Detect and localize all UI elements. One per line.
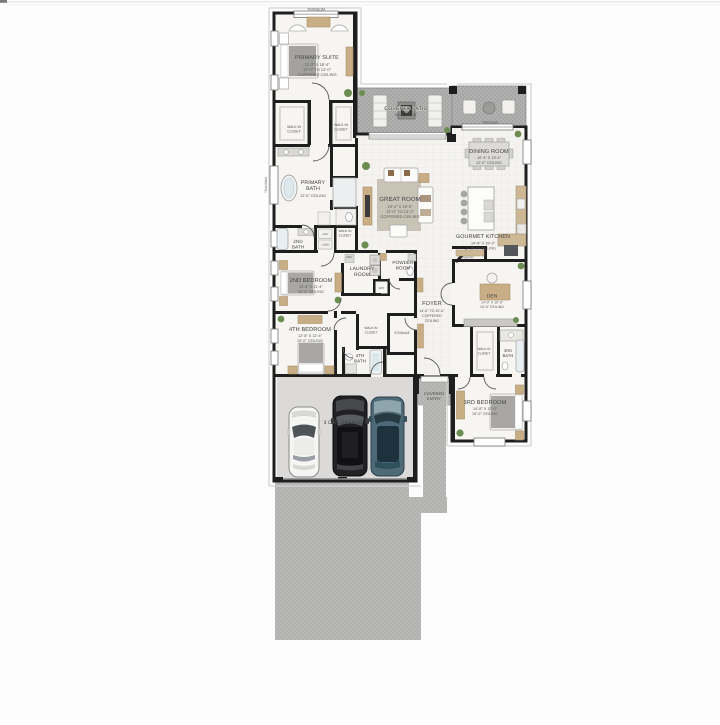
svg-text:12'-0" CEILING: 12'-0" CEILING	[300, 194, 326, 198]
svg-text:WALK IN: WALK IN	[478, 347, 492, 351]
svg-text:2ND: 2ND	[293, 239, 303, 244]
svg-text:COFFERED CEILING: COFFERED CEILING	[380, 214, 419, 219]
svg-text:PRIMARY SUITE: PRIMARY SUITE	[295, 55, 339, 61]
svg-text:ROOM: ROOM	[396, 266, 411, 271]
svg-text:10'-0" CEILING: 10'-0" CEILING	[297, 339, 323, 343]
svg-text:11'-4" X 11'-4": 11'-4" X 11'-4"	[299, 285, 323, 289]
svg-text:ROOM: ROOM	[354, 272, 370, 278]
svg-text:3 CAR GARAGE: 3 CAR GARAGE	[324, 420, 363, 426]
svg-text:GOURMET KITCHEN: GOURMET KITCHEN	[456, 234, 510, 240]
svg-text:GREAT ROOM: GREAT ROOM	[379, 196, 420, 203]
svg-text:14'-0" TO 15'-0": 14'-0" TO 15'-0"	[419, 309, 445, 313]
svg-text:CLOSET: CLOSET	[334, 128, 348, 132]
svg-text:10'-0" CEILING: 10'-0" CEILING	[480, 305, 504, 309]
svg-text:14'-8" X 12'-0": 14'-8" X 12'-0"	[473, 407, 498, 411]
svg-text:4TH BEDROOM: 4TH BEDROOM	[289, 327, 331, 333]
svg-text:PANTRY: PANTRY	[462, 256, 474, 260]
svg-text:16'-4" X 13'-4": 16'-4" X 13'-4"	[477, 156, 502, 160]
svg-text:TRANSOM: TRANSOM	[264, 177, 268, 193]
svg-text:14'-0" X 10'-0": 14'-0" X 10'-0"	[481, 301, 504, 305]
svg-text:CLOSET: CLOSET	[365, 331, 378, 335]
svg-text:12'-8" X 12'-4": 12'-8" X 12'-4"	[298, 334, 323, 338]
svg-text:FOYER: FOYER	[422, 301, 442, 307]
svg-text:CLOSET: CLOSET	[339, 234, 352, 238]
svg-text:BATH: BATH	[306, 186, 320, 192]
svg-text:CLOSET: CLOSET	[287, 130, 301, 134]
svg-text:10'-0" CEILING: 10'-0" CEILING	[298, 290, 324, 294]
svg-text:WALK IN: WALK IN	[339, 229, 353, 233]
svg-text:STORAGE: STORAGE	[394, 331, 410, 335]
svg-text:4TH: 4TH	[356, 353, 365, 358]
svg-text:SINK: SINK	[346, 256, 352, 259]
svg-text:10'-0" CEILING: 10'-0" CEILING	[472, 412, 498, 416]
svg-text:2ND BEDROOM: 2ND BEDROOM	[290, 278, 333, 284]
svg-text:12'-0" CEILING: 12'-0" CEILING	[476, 161, 502, 165]
svg-text:DEN: DEN	[487, 294, 498, 300]
svg-text:COFFERED: COFFERED	[422, 314, 442, 318]
svg-text:BATH: BATH	[503, 353, 514, 358]
svg-text:TRANSOM: TRANSOM	[307, 8, 325, 12]
svg-text:BATH: BATH	[292, 245, 304, 250]
svg-text:WALK IN: WALK IN	[365, 326, 379, 330]
svg-text:CLOSET: CLOSET	[478, 352, 491, 356]
svg-text:14'-8" X 19'-2": 14'-8" X 19'-2"	[471, 242, 496, 246]
svg-text:POWDER: POWDER	[392, 260, 414, 265]
svg-text:BATH: BATH	[354, 359, 366, 364]
svg-text:3RD BEDROOM: 3RD BEDROOM	[464, 400, 507, 406]
svg-text:W/H: W/H	[379, 286, 384, 290]
svg-text:TRANSOM: TRANSOM	[482, 121, 498, 125]
svg-text:ENTRY: ENTRY	[427, 396, 441, 401]
svg-text:CEILING: CEILING	[425, 319, 440, 323]
svg-text:COFFERED CEILING: COFFERED CEILING	[297, 72, 336, 77]
svg-text:WALK IN: WALK IN	[287, 125, 301, 129]
svg-text:UNIT: UNIT	[322, 233, 328, 236]
svg-text:WALK IN: WALK IN	[334, 123, 348, 127]
svg-text:24'-4" X 10'-0": 24'-4" X 10'-0"	[395, 113, 418, 117]
svg-text:LINEN: LINEN	[322, 244, 330, 247]
svg-text:10'-0" CEILING: 10'-0" CEILING	[470, 247, 496, 251]
svg-text:DINING ROOM: DINING ROOM	[469, 149, 509, 155]
svg-text:COVERED PATIO: COVERED PATIO	[384, 106, 427, 112]
